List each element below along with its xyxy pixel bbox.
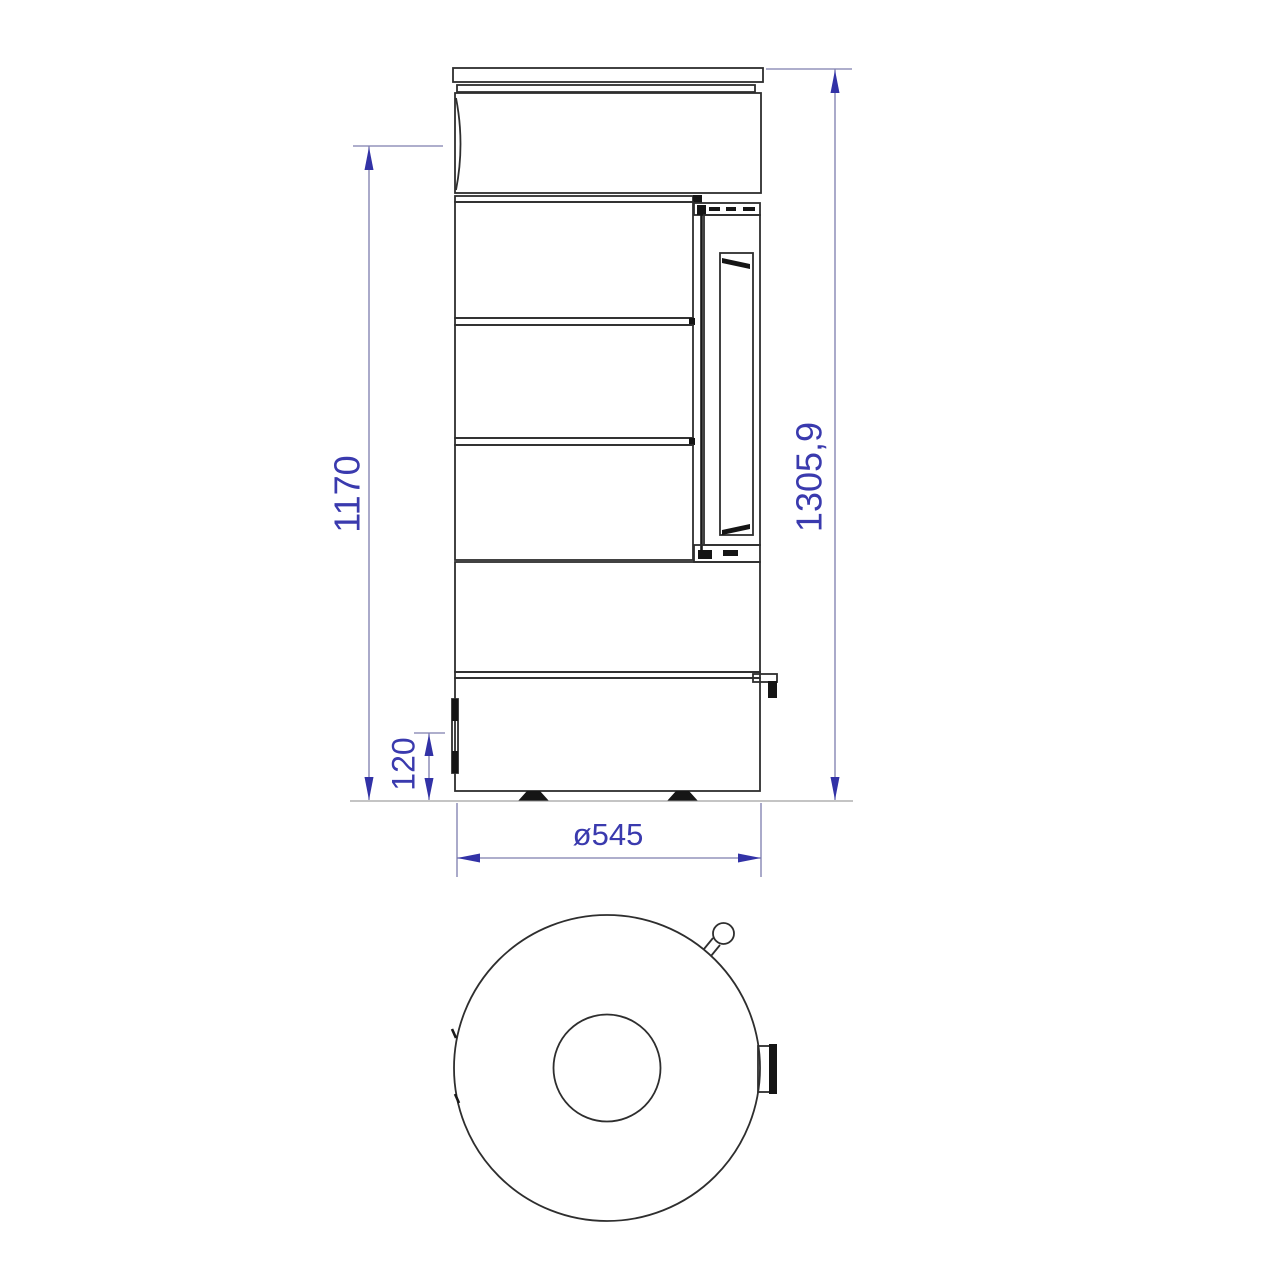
- top-view: [452, 915, 777, 1221]
- arrowhead-up: [425, 734, 434, 756]
- base-handle-grip: [768, 681, 777, 698]
- drum-curvature-line: [456, 98, 461, 190]
- drum-section-5: [455, 562, 760, 672]
- handle-stem-line-2: [704, 938, 713, 949]
- lid-collar: [457, 85, 755, 92]
- technical-drawing: 1170 1305,9 120 ø545: [0, 0, 1280, 1280]
- flue-outlet-circle: [554, 1015, 661, 1122]
- side-view: [350, 68, 853, 801]
- door-frame-bottom-dash: [723, 550, 738, 556]
- dimension-base-height: 120: [385, 733, 445, 800]
- arrowhead-up: [365, 147, 374, 170]
- door-glass: [720, 253, 753, 535]
- arrowhead-left: [457, 854, 480, 863]
- dimension-text-total-height: 1305,9: [789, 422, 830, 532]
- dimension-text-body-height: 1170: [327, 455, 368, 532]
- base-section: [455, 678, 760, 791]
- dimension-total-height: 1305,9: [766, 69, 852, 800]
- drum-section-3: [455, 325, 693, 438]
- base-hinge-cap-top: [452, 699, 458, 721]
- joint-ring-2: [455, 318, 693, 325]
- glass-clip-top: [722, 258, 750, 269]
- lid-top-plate: [453, 68, 763, 82]
- dimension-body-height: 1170: [327, 146, 443, 800]
- hinge-tick-bottom: [455, 1094, 459, 1103]
- drum-section-4: [455, 445, 693, 560]
- arrowhead-down: [831, 777, 840, 800]
- joint-ring-3: [455, 438, 693, 445]
- adjustable-foot-left: [518, 791, 549, 801]
- arrowhead-down: [425, 778, 434, 800]
- door-handle: [704, 923, 734, 956]
- dimension-text-base-height: 120: [385, 737, 421, 790]
- arrowhead-down: [365, 777, 374, 800]
- door-frame-dash-3: [743, 207, 755, 211]
- drum-section-2: [455, 202, 693, 318]
- dimension-diameter: ø545: [457, 803, 761, 877]
- adjustable-foot-right: [667, 791, 698, 801]
- glass-clip-bottom: [722, 524, 750, 535]
- base-hinge-cap-bottom: [452, 751, 458, 773]
- door-frame-dash-1: [709, 207, 720, 211]
- joint-ring-base: [455, 672, 760, 678]
- latch-bar: [769, 1044, 777, 1094]
- hinge-pin-lower: [689, 438, 695, 445]
- drawing-sheet: 1170 1305,9 120 ø545: [0, 0, 1280, 1280]
- handle-knob: [713, 923, 734, 944]
- arrowhead-up: [831, 70, 840, 93]
- dimension-text-diameter: ø545: [573, 817, 644, 852]
- hinge-pin-middle: [689, 318, 695, 325]
- door-frame-bottom-block: [698, 550, 712, 559]
- door-frame-top-block: [697, 205, 706, 215]
- hinge-pin-top: [693, 195, 702, 203]
- plan-outer-circle: [454, 915, 760, 1221]
- drum-section-top: [455, 93, 761, 193]
- door-frame-dash-2: [726, 207, 736, 211]
- door: [694, 203, 760, 562]
- handle-stem-line-1: [711, 945, 720, 956]
- arrowhead-right: [738, 854, 761, 863]
- hinge-tick-top: [452, 1029, 456, 1038]
- dimensions: 1170 1305,9 120 ø545: [327, 69, 852, 877]
